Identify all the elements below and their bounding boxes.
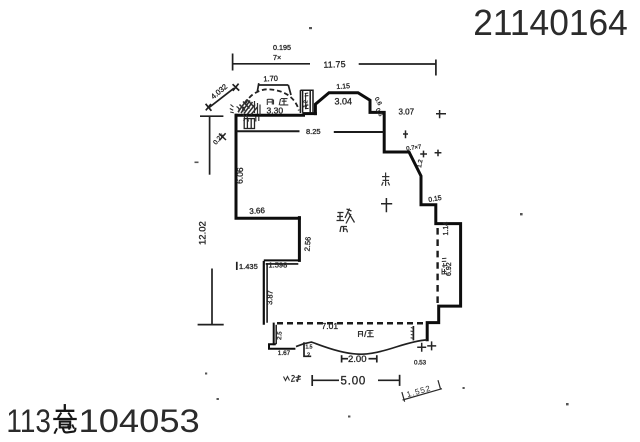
svg-text:8.25: 8.25 — [306, 127, 321, 136]
svg-text:0.53: 0.53 — [414, 360, 427, 367]
svg-text:11.75: 11.75 — [323, 59, 346, 70]
svg-text:7.01: 7.01 — [322, 321, 339, 331]
svg-text:6.06: 6.06 — [235, 167, 246, 184]
svg-text:2.00: 2.00 — [348, 354, 367, 365]
svg-text:3.87: 3.87 — [265, 290, 275, 305]
svg-text:12.02: 12.02 — [198, 221, 209, 245]
svg-text:1.70: 1.70 — [263, 74, 278, 84]
svg-text:1.67: 1.67 — [278, 350, 291, 357]
svg-text:5.00: 5.00 — [341, 376, 367, 388]
svg-text:3.30: 3.30 — [267, 106, 284, 116]
svg-text:104053: 104053 — [79, 404, 200, 440]
svg-text:3.07: 3.07 — [399, 108, 415, 117]
svg-text:1.2: 1.2 — [303, 100, 310, 108]
svg-text:1.598: 1.598 — [269, 261, 288, 270]
svg-text:2.5: 2.5 — [277, 331, 284, 340]
svg-text:3.04: 3.04 — [335, 97, 353, 107]
svg-text:2: 2 — [307, 353, 310, 359]
svg-text:1.435: 1.435 — [239, 262, 258, 271]
svg-text:1.14: 1.14 — [443, 222, 450, 236]
svg-text:6.92: 6.92 — [446, 262, 453, 276]
svg-text:2.56: 2.56 — [303, 236, 313, 251]
svg-text:1.15: 1.15 — [336, 83, 350, 91]
svg-text:7×: 7× — [273, 53, 281, 62]
svg-text:0.195: 0.195 — [273, 43, 291, 52]
svg-text:3.66: 3.66 — [249, 206, 266, 216]
svg-text:21140164: 21140164 — [473, 2, 627, 43]
svg-text:113: 113 — [6, 404, 51, 439]
svg-text:1.5: 1.5 — [306, 345, 313, 351]
